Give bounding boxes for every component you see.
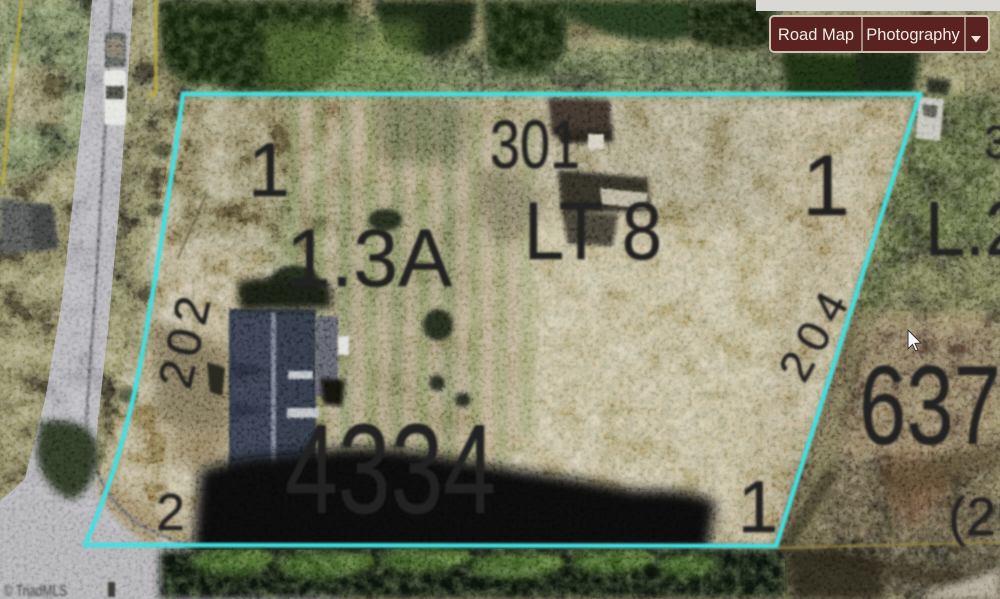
svg-text:4334: 4334	[285, 398, 496, 540]
svg-text:637: 637	[859, 343, 1000, 468]
svg-text:3: 3	[984, 116, 1000, 168]
svg-text:L.2: L.2	[925, 186, 1000, 272]
svg-text:Photography: Photography	[866, 26, 960, 44]
svg-text:2: 2	[156, 484, 185, 542]
svg-text:Road Map: Road Map	[778, 26, 854, 44]
svg-text:1: 1	[802, 138, 850, 234]
svg-text:(2: (2	[948, 487, 996, 547]
svg-text:1: 1	[738, 467, 779, 548]
svg-text:LT 8: LT 8	[524, 186, 662, 277]
svg-text:© TriadMLS: © TriadMLS	[4, 583, 67, 599]
svg-text:1: 1	[248, 128, 290, 213]
svg-text:1.3A: 1.3A	[286, 213, 452, 304]
svg-text:301: 301	[490, 106, 580, 183]
